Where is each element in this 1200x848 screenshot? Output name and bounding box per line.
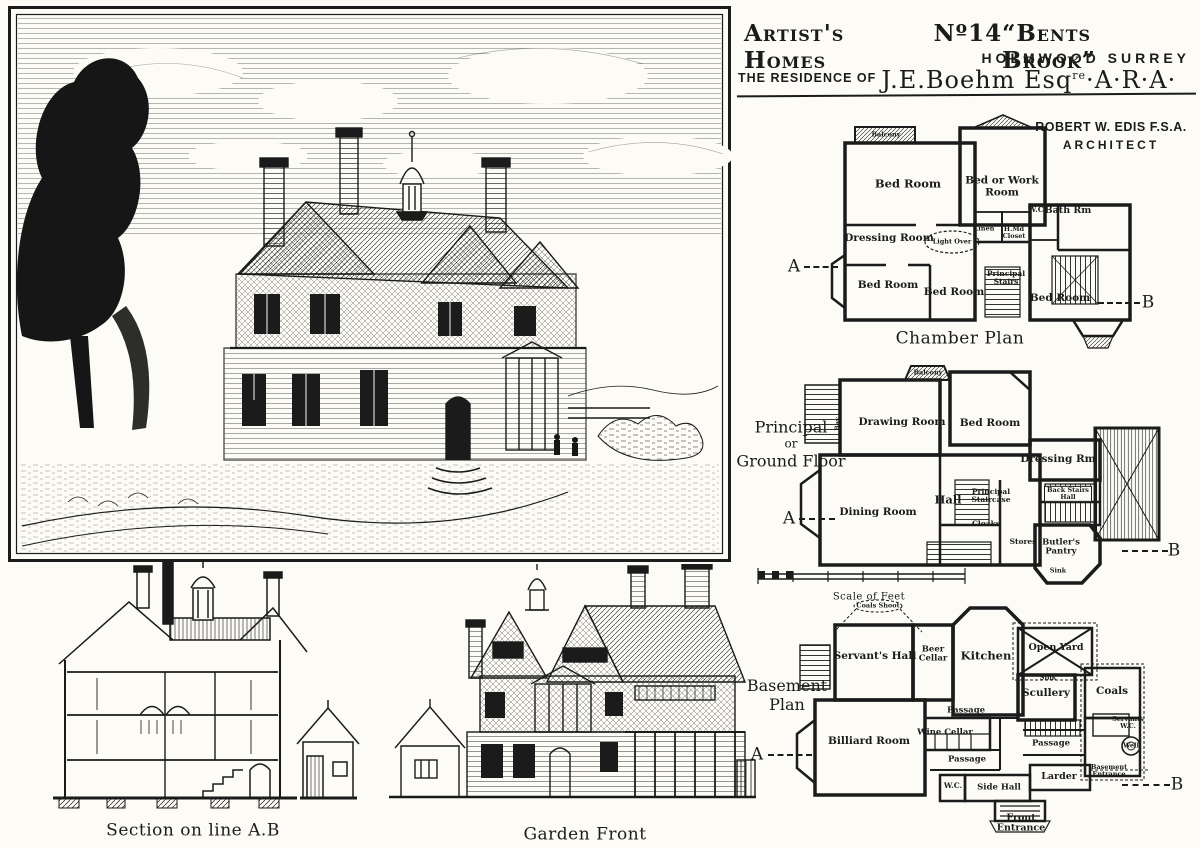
room-label-principal-stairs: Principal Stairs: [980, 270, 1032, 287]
room-label-ground-sink: Sink: [1050, 567, 1066, 574]
room-label-bed-or-work-room: Bed or Work Room: [965, 175, 1039, 198]
residence-prefix: THE RESIDENCE OF: [738, 71, 876, 85]
room-label-servants-hall: Servant's Hall: [834, 651, 917, 663]
ground-floor-side-label: Principal or Ground Floor: [736, 418, 845, 471]
room-label-dressing-rm: Dressing Rm: [1020, 454, 1096, 466]
section-stairs: [193, 770, 243, 798]
room-label-stores: Stores: [1010, 538, 1037, 546]
ground-side-line-3: Ground Floor: [736, 451, 845, 470]
room-label-housemaids-closet: H.Md Closet: [995, 226, 1033, 240]
room-label-front-entrance: Front Entrance: [989, 814, 1053, 835]
room-label-bed-room-3: Bed Room: [924, 287, 984, 299]
ground-floor-plan-drawing: [738, 352, 1200, 600]
garden-cupola: [525, 564, 549, 610]
ground-side-line-2: or: [736, 437, 845, 451]
room-label-basement-sink: Sink: [1040, 674, 1056, 681]
ground-section-line-a: [799, 518, 835, 520]
ground-section-line-b: [1122, 550, 1168, 552]
room-label-basement-entrance: Basement Entrance: [1081, 764, 1137, 778]
garden-front-caption: Garden Front: [523, 826, 646, 845]
basement-section-line-b: [1122, 784, 1170, 786]
room-label-light-over: Light Over: [933, 238, 972, 245]
basement-section-line-a: [768, 754, 812, 756]
room-label-kitchen: Kitchen: [961, 650, 1012, 663]
room-label-servants-wc: Servants W.C.: [1109, 716, 1147, 730]
ground-section-marker-a: A: [783, 510, 795, 529]
resident-name-main: J.E.Boehm Esq: [881, 66, 1072, 94]
room-label-scullery: Scullery: [1022, 688, 1070, 700]
room-label-principal-staircase: Principal Staircase: [966, 488, 1016, 505]
section-elevation-sketch: [45, 560, 365, 818]
room-label-bay: Bay: [834, 417, 841, 430]
chamber-plan-caption: Chamber Plan: [896, 330, 1025, 349]
resident-name-suffix: ·A·R·A·: [1086, 66, 1176, 94]
plate: Artist's Homes Nº14 “Bents Brook” HOLMWO…: [0, 0, 1200, 848]
chamber-section-line-a: [804, 266, 838, 268]
dimension-ticks: [97, 678, 251, 754]
title-location: HOLMWOOD SURREY: [880, 50, 1190, 66]
perspective-engraving: [8, 6, 731, 562]
room-label-passage-lower: Passage: [948, 755, 986, 764]
room-label-billiard-room: Billiard Room: [828, 736, 910, 748]
room-label-hall: Hall: [934, 494, 961, 507]
room-label-balcony: Balcony: [872, 131, 901, 138]
room-label-butlers-pantry: Butler's Pantry: [1038, 539, 1084, 558]
room-label-cloaks: Cloaks: [972, 520, 1000, 528]
room-label-coals: Coals: [1096, 686, 1128, 698]
room-label-side-hall: Side Hall: [977, 783, 1021, 792]
room-label-basement-wc: W.C.: [944, 782, 962, 790]
ground-section-marker-b: B: [1168, 542, 1181, 561]
ground-floor-plan: [738, 352, 1200, 600]
garden-front-elevation: [385, 564, 760, 816]
room-label-bath-rm: Bath Rm: [1045, 206, 1092, 216]
room-label-beer-cellar: Beer Cellar: [913, 646, 953, 665]
room-label-dressing-room: Dressing Room: [844, 233, 934, 245]
verandah-roof-hatch: [1095, 428, 1159, 540]
perspective-engraving-sketch: [8, 6, 731, 562]
chamber-section-marker-a: A: [788, 258, 800, 277]
title-number: Nº14: [934, 20, 1003, 47]
room-label-back-stairs-hall: Back Stairs Hall: [1044, 486, 1092, 502]
room-label-bed-room-4: Bed Room: [1030, 293, 1090, 305]
section-outbuilding: [297, 700, 359, 798]
room-label-passage-upper: Passage: [947, 706, 985, 715]
room-label-open-yard: Open Yard: [1028, 643, 1083, 653]
basement-section-marker-b: B: [1171, 776, 1184, 795]
chamber-section-line-b: [1098, 302, 1140, 304]
room-label-bed-room-2: Bed Room: [858, 280, 918, 292]
section-caption: Section on line A.B: [106, 822, 280, 841]
room-label-well: Well: [1123, 742, 1139, 749]
section-elevation: [45, 560, 365, 818]
room-label-bed-room-1: Bed Room: [875, 178, 941, 191]
garden-front-sketch: [385, 564, 760, 816]
section-cupola: [191, 560, 215, 620]
title-residence: THE RESIDENCE OF J.E.Boehm Esqre·A·R·A·: [738, 66, 1198, 94]
room-label-wine-cellar: Wine Cellar: [917, 728, 973, 737]
room-label-ground-bed-room: Bed Room: [960, 418, 1020, 430]
ground-side-line-1: Principal: [736, 418, 845, 437]
room-label-coals-shoot: Coals Shoot: [856, 602, 899, 609]
resident-name: J.E.Boehm Esqre·A·R·A·: [881, 66, 1176, 94]
room-label-passage-right: Passage: [1032, 739, 1070, 748]
garden-outbuilding: [395, 699, 465, 797]
room-label-drawing-room: Drawing Room: [859, 417, 946, 429]
scale-bar: [758, 568, 965, 584]
room-label-wc: W.C.: [1028, 206, 1046, 214]
resident-name-sup: re: [1072, 69, 1086, 82]
room-label-larder: Larder: [1041, 772, 1077, 782]
principal-stairs-hatch: [985, 256, 1098, 317]
room-label-linen: Linen: [974, 225, 995, 232]
room-label-ground-balcony: Balcony: [914, 369, 943, 376]
chamber-section-marker-b: B: [1142, 294, 1155, 313]
room-label-dining-room: Dining Room: [839, 507, 916, 519]
